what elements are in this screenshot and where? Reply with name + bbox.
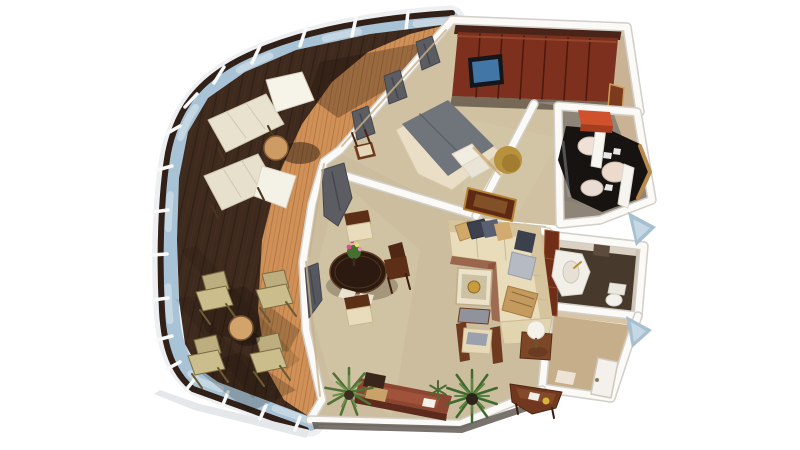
- dining-chair-top-cushion: [346, 222, 373, 242]
- floorplan-page: [0, 0, 800, 450]
- deck-side-table: [264, 136, 288, 160]
- entry-door-knob: [595, 378, 599, 382]
- ottoman-bench: [458, 308, 490, 324]
- bathroom-towel-2: [613, 148, 621, 155]
- deck-round-table: [229, 316, 253, 340]
- powder-toilet-tank: [608, 283, 626, 295]
- bathroom-sink-3: [581, 180, 603, 196]
- tv-screen: [472, 59, 500, 83]
- lamp-globe: [527, 321, 545, 339]
- suite-floorplan-figure: [0, 0, 800, 450]
- floorplan-svg: [0, 0, 800, 450]
- scene-root: [152, 12, 656, 438]
- centerpiece-flower-4: [358, 247, 362, 251]
- palm-left-pot: [344, 390, 354, 400]
- centerpiece-flower-2: [355, 243, 359, 247]
- centerpiece-flower-1: [347, 245, 352, 250]
- sofa-pillow-dark-3: [514, 230, 536, 253]
- lamp-shadow: [528, 347, 548, 357]
- fern-pot: [466, 393, 478, 405]
- vanity-stool-orange: [578, 110, 613, 126]
- powder-sink-basin: [563, 261, 579, 283]
- bathroom-towel-1: [603, 152, 612, 159]
- dining-chair-bottom-cushion: [346, 306, 373, 326]
- console-fruit: [543, 398, 550, 405]
- powder-mirror: [593, 244, 610, 257]
- powder-toilet-bowl: [606, 294, 622, 306]
- armchair-pillow: [466, 332, 488, 346]
- coffee-table-gold-bowl: [468, 281, 480, 293]
- bedroom-ottoman-shade: [502, 154, 520, 172]
